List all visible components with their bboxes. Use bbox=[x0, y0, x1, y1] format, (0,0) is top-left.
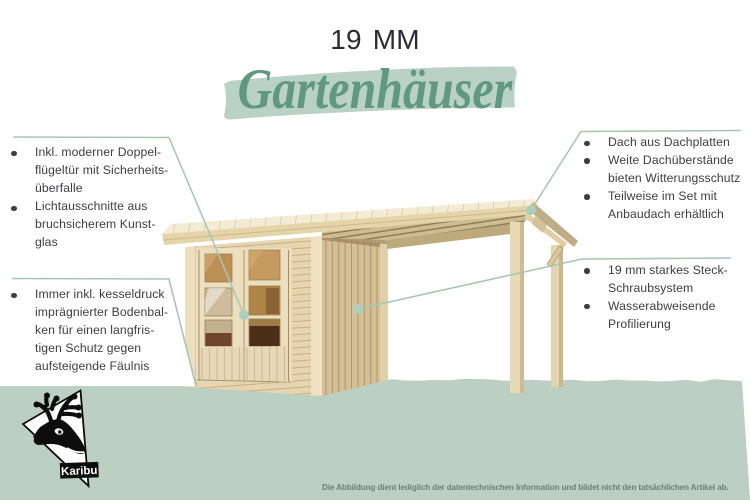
svg-text:Karibu: Karibu bbox=[61, 465, 98, 478]
